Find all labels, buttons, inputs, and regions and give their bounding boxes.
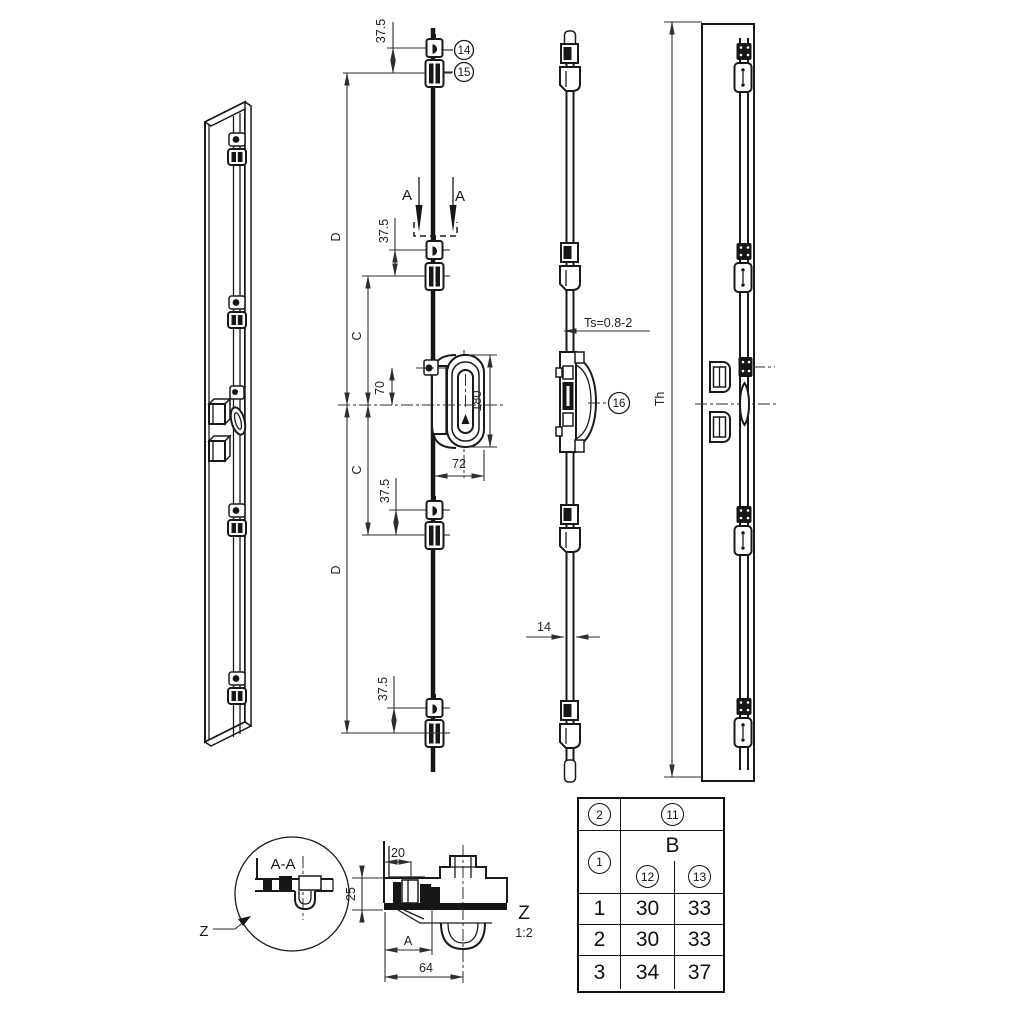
callout-15-label: 15 (458, 67, 471, 79)
iso-keep-1 (209, 399, 230, 424)
back-cluster-3 (735, 506, 752, 555)
dim-25: 25 (344, 887, 358, 901)
zone-reference: Z (199, 916, 251, 940)
callout-14: 14 (441, 41, 474, 60)
dim-th: Th (653, 392, 667, 407)
circled-13: 13 (688, 865, 711, 888)
back-cluster-4 (735, 698, 752, 747)
section-label-left: A (402, 187, 412, 204)
table-row-value: 34 (620, 955, 674, 989)
front-view: A A 14 15 37.5 (329, 19, 505, 772)
table-row-item: 1 (579, 893, 620, 924)
dim-c-lower: C (350, 465, 364, 474)
table-row-value: 30 (620, 924, 674, 955)
table-row-value: 33 (674, 924, 724, 955)
table-head-col-ref: 11 (620, 799, 724, 830)
back-cluster-2 (735, 243, 752, 292)
table-row-item: 3 (579, 955, 620, 989)
dim-c-upper: C (350, 331, 364, 340)
circled-11: 11 (661, 803, 684, 826)
isometric-view (205, 102, 251, 746)
dim-a: A (404, 934, 413, 948)
zone-ref-label: Z (199, 923, 208, 940)
iso-cluster-4 (228, 672, 246, 704)
callout-16-label: 16 (613, 398, 626, 410)
side-cluster-4 (560, 701, 580, 748)
table-sub-ref-right: 13 (675, 861, 724, 893)
front-gearbox (416, 350, 484, 478)
dim-d-lower: D (329, 565, 343, 574)
table-group-cell: B 12 13 (620, 830, 724, 893)
dim-70: 70 (373, 381, 387, 395)
front-cluster-1 (426, 34, 453, 87)
callout-15: 15 (443, 63, 474, 82)
table-row-value: 37 (674, 955, 724, 989)
detail-z-scale: 1:2 (515, 926, 532, 940)
circled-12: 12 (636, 865, 659, 888)
dim-72: 72 (452, 457, 466, 471)
table-group-label: B (621, 831, 724, 861)
iso-cluster-1 (228, 133, 246, 165)
dim-375-top: 37.5 (374, 19, 388, 43)
detail-aa: A-A Z (199, 837, 349, 951)
table-head-row-ref: 2 (579, 799, 620, 830)
front-cluster-2 (426, 236, 451, 290)
callout-16: 16 (588, 393, 630, 414)
front-cluster-3 (426, 496, 451, 549)
side-view: Ts=0.8-2 16 14 (526, 31, 650, 782)
table-sub-ref-left: 12 (621, 861, 675, 893)
circled-2: 2 (588, 803, 611, 826)
table-head-item-ref: 1 (579, 830, 620, 893)
detail-z-title: Z 1:2 (515, 903, 532, 940)
table-row-value: 33 (674, 893, 724, 924)
dim-375-lower: 37.5 (378, 479, 392, 503)
dim-64: 64 (419, 961, 433, 975)
detail-z-label: Z (518, 903, 530, 924)
table-row-item: 2 (579, 924, 620, 955)
dim-d-upper: D (329, 232, 343, 241)
technical-drawing: A A 14 15 37.5 (0, 0, 1024, 1024)
width-dimension: 14 (526, 620, 600, 637)
side-cluster-3 (560, 505, 580, 552)
dim-375-bottom: 37.5 (376, 677, 390, 701)
side-cluster-2 (560, 243, 580, 290)
dim-20: 20 (391, 846, 405, 860)
drawing-sheet: A A 14 15 37.5 (0, 0, 1024, 1024)
thickness-label: Ts=0.8-2 (584, 316, 632, 330)
detail-z: 20 25 A 64 Z 1:2 (344, 841, 533, 983)
callout-14-label: 14 (458, 45, 471, 57)
detail-aa-title: A-A (270, 856, 295, 873)
iso-cluster-3 (228, 504, 246, 536)
dim-14: 14 (537, 620, 551, 634)
dim-180: 180 (470, 391, 484, 412)
thickness-leader: Ts=0.8-2 (564, 316, 650, 331)
circled-1: 1 (588, 851, 611, 874)
height-dimension: Th (653, 22, 702, 777)
size-table: 2 11 1 B 12 13 1 30 33 2 30 33 3 34 37 (577, 797, 725, 993)
side-cluster-1 (560, 44, 580, 91)
section-label-right: A (455, 188, 465, 205)
front-cluster-4 (426, 694, 451, 747)
back-view: Th (653, 22, 777, 781)
side-gearbox (556, 352, 596, 452)
iso-cluster-2 (228, 296, 246, 328)
table-row-value: 30 (620, 893, 674, 924)
iso-keep-2 (209, 436, 230, 461)
back-cluster-1 (735, 43, 752, 92)
dim-375-upper: 37.5 (377, 219, 391, 243)
